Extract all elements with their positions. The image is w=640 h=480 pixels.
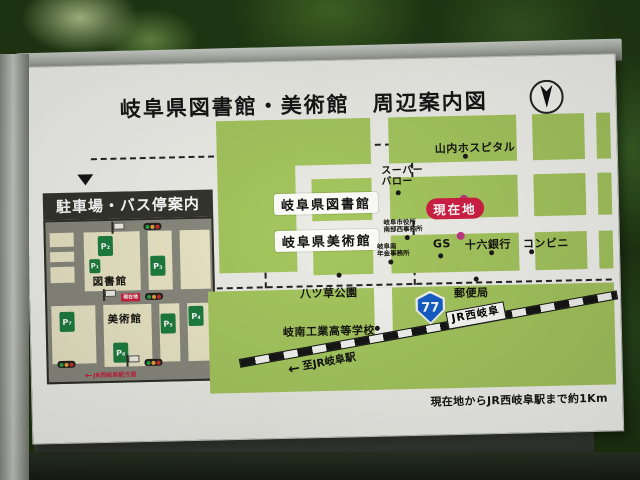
school-marker [375, 326, 380, 331]
museum-label: 岐阜県美術館 [275, 229, 379, 252]
left-arrow-icon: ← [85, 371, 93, 381]
current-location-badge: 現在地 [426, 197, 484, 219]
inset-museum-label: 美術館 [107, 311, 142, 327]
hospital-marker [463, 154, 468, 159]
school-label: 岐南工業高等学校 [283, 322, 375, 340]
parking-lot-mark: P₁ [89, 259, 100, 273]
convenience-store-marker [529, 249, 534, 254]
parking-lot-mark: P₇ [59, 312, 74, 332]
post-office-label: 郵便局 [454, 284, 489, 301]
photo-scene: 岐阜県図書館・美術館 周辺案内図 駐車場・バス停案内 P₂ P₁ P₃ [0, 0, 640, 480]
hospital-label: 山内ホスピタル [435, 139, 516, 157]
map-sign-board: 岐阜県図書館・美術館 周辺案内図 駐車場・バス停案内 P₂ P₁ P₃ [24, 53, 624, 444]
inset-library-label: 図書館 [93, 273, 128, 289]
park-label: 八ツ草公園 [300, 284, 358, 301]
sign-frame-left-post [0, 54, 29, 480]
city-block [597, 172, 612, 214]
gas-station-label: GS [433, 237, 451, 250]
bus-stop-icon [124, 354, 138, 366]
route-arrowhead-to-inset [77, 174, 93, 185]
inset-station-direction: ←JR西岐阜駅方面 [85, 369, 137, 381]
gas-station-marker [438, 253, 443, 258]
inset-city-block [50, 233, 74, 248]
inset-title: 駐車場・バス停案内 [43, 190, 214, 221]
parking-inset-map: P₂ P₁ P₃ P₇ P₅ P₄ P₆ 図書館 美術館 現在地 ←JR西岐阜駅… [43, 217, 217, 385]
pension-office-label: 岐阜南 年金事務所 [377, 243, 410, 258]
inset-city-block [50, 252, 74, 263]
traffic-light-icon [143, 223, 161, 230]
left-arrow-icon: ← [287, 360, 301, 378]
north-arrow-icon [529, 80, 564, 115]
city-block [596, 112, 611, 158]
parking-lot-mark: P₅ [160, 313, 175, 333]
parking-lot-mark: P₂ [98, 236, 113, 256]
ground-shadow [0, 452, 640, 480]
city-office-label: 岐阜市役所 南部西事務所 [383, 219, 422, 234]
bus-stop-icon [109, 222, 123, 234]
pension-office-marker [388, 259, 393, 264]
parking-lot-mark: P₄ [188, 306, 203, 326]
compass-needle [538, 85, 555, 108]
inset-current-location-badge: 現在地 [121, 293, 140, 301]
inset-city-block [50, 267, 74, 284]
inset-city-block [180, 230, 211, 290]
city-office-marker [405, 235, 410, 240]
city-block [216, 118, 371, 167]
traffic-light-icon [144, 359, 162, 366]
city-block [532, 113, 585, 160]
supermarket-marker [396, 190, 401, 195]
bank-marker [489, 250, 494, 255]
supermarket-label: スーパー バロー [381, 165, 423, 188]
bus-stop-icon [101, 289, 115, 301]
parking-lot-mark: P₃ [150, 256, 165, 276]
park-marker [337, 273, 342, 278]
traffic-light-icon [57, 361, 75, 368]
city-block [533, 173, 586, 216]
city-block [208, 282, 616, 393]
library-label: 岐阜県図書館 [274, 192, 378, 215]
city-block [599, 230, 614, 268]
traffic-light-icon [145, 293, 163, 300]
distance-note: 現在地からJR西岐阜駅まで約1Km [430, 390, 608, 410]
bank-label: 十六銀行 [465, 236, 511, 253]
post-office-marker [474, 276, 479, 281]
